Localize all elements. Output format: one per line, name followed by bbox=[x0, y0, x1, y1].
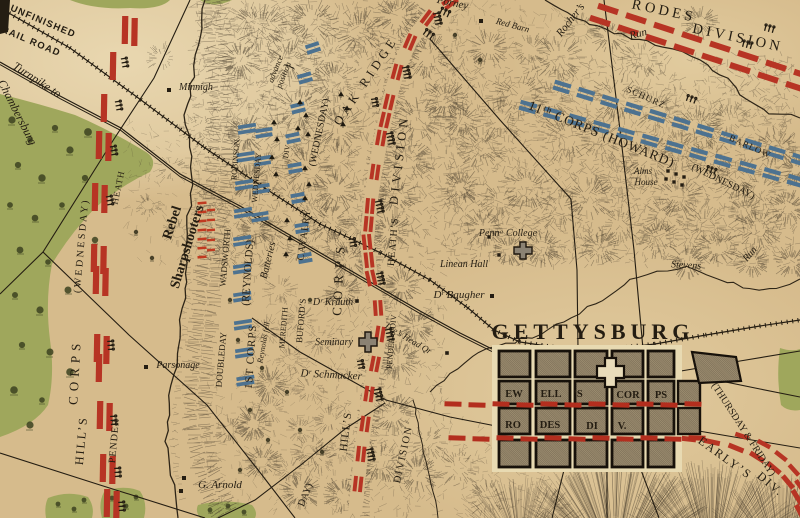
svg-text:ELL: ELL bbox=[540, 389, 561, 400]
svg-text:DES: DES bbox=[540, 420, 561, 431]
svg-text:G. Arnold: G. Arnold bbox=[198, 479, 242, 491]
svg-text:House: House bbox=[634, 177, 658, 187]
svg-text:Minnigh: Minnigh bbox=[178, 82, 213, 93]
svg-text:Seminary: Seminary bbox=[315, 337, 353, 348]
svg-text:COR: COR bbox=[616, 390, 640, 401]
svg-text:Dʳ Krauth: Dʳ Krauth bbox=[312, 297, 353, 308]
svg-text:V.: V. bbox=[618, 421, 627, 432]
svg-text:DI: DI bbox=[586, 421, 598, 432]
svg-text:EW: EW bbox=[505, 389, 523, 400]
svg-text:PS: PS bbox=[655, 390, 667, 401]
svg-text:Pennᵃ College: Pennᵃ College bbox=[478, 228, 538, 239]
svg-text:Parsonage: Parsonage bbox=[155, 360, 200, 371]
svg-text:Alms: Alms bbox=[633, 166, 652, 176]
svg-text:Linean Hall: Linean Hall bbox=[439, 259, 488, 270]
svg-text:Dʳ Baugher: Dʳ Baugher bbox=[432, 289, 485, 301]
svg-text:Stevens: Stevens bbox=[671, 259, 702, 272]
svg-text:’S: ’S bbox=[573, 389, 582, 400]
svg-text:RO: RO bbox=[505, 420, 521, 431]
svg-text:GETTYSBURG: GETTYSBURG bbox=[492, 319, 695, 344]
